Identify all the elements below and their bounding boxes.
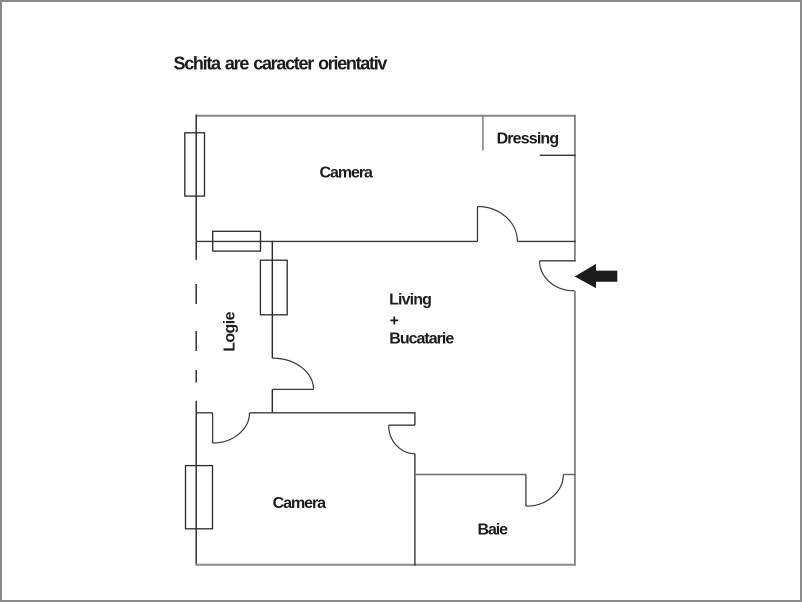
svg-text:Dressing: Dressing — [497, 130, 559, 147]
svg-text:Bucatarie: Bucatarie — [389, 331, 454, 348]
svg-text:Baie: Baie — [478, 522, 509, 539]
svg-text:+: + — [390, 313, 399, 330]
svg-text:Camera: Camera — [273, 495, 327, 512]
svg-text:Living: Living — [389, 291, 431, 308]
svg-text:Camera: Camera — [320, 164, 374, 181]
svg-text:Logie: Logie — [222, 311, 239, 351]
svg-text:Schita are caracter orientativ: Schita are caracter orientativ — [174, 54, 388, 74]
